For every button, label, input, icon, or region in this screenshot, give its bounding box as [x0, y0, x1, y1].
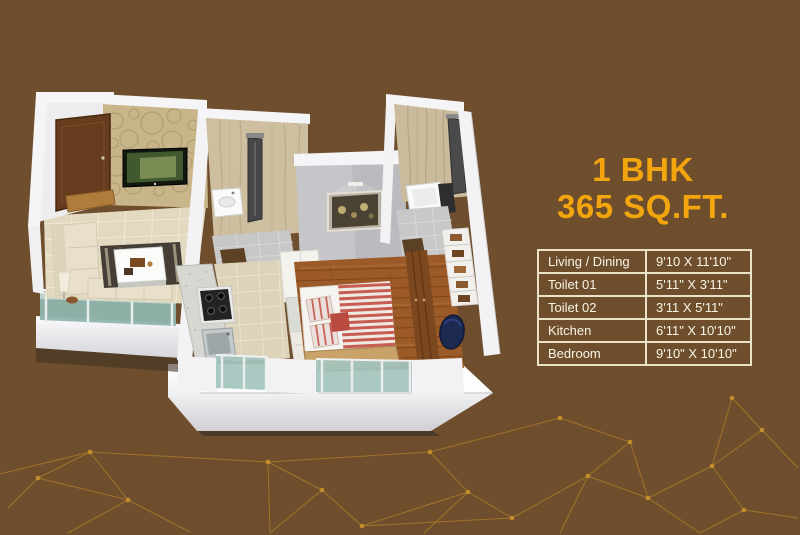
table-room-label: Living / Dining [539, 251, 645, 272]
table-size-value: 6'11" X 10'10" [645, 318, 750, 341]
toilet-01-washbasin [212, 188, 243, 217]
front-walls-and-railings [178, 355, 464, 394]
table-room-label: Toilet 02 [539, 295, 645, 318]
toilet-01-shower [246, 133, 264, 222]
table-room-label: Kitchen [539, 318, 645, 341]
gas-stove [197, 286, 235, 324]
plan-title: 1 BHK 365 SQ.FT. [532, 151, 754, 225]
tv-unit [123, 148, 187, 187]
plan-title-line2: 365 SQ.FT. [532, 188, 754, 225]
bedroom-balcony-railing [316, 359, 414, 392]
plan-title-line1: 1 BHK [532, 151, 754, 188]
table-size-value: 9'10" X 10'10" [645, 341, 750, 364]
table-room-label: Toilet 01 [539, 272, 645, 295]
kitchen-balcony-railing [216, 355, 268, 390]
table-size-value: 5'11" X 3'11" [645, 272, 750, 295]
bedroom [292, 250, 466, 372]
dimensions-table: Living / Dining 9'10 X 11'10" Toilet 01 … [537, 249, 752, 366]
bed [300, 281, 403, 372]
table-size-value: 9'10 X 11'10" [645, 251, 750, 272]
side-stool [66, 297, 78, 304]
building [28, 92, 500, 436]
bedroom-wall-picture [328, 191, 382, 231]
table-room-label: Bedroom [539, 341, 645, 364]
table-size-value: 3'11 X 5'11" [645, 295, 750, 318]
coffee-table [114, 247, 166, 288]
poster-canvas: 1 BHK 365 SQ.FT. Living / Dining 9'10 X … [0, 0, 800, 535]
toilet-01 [198, 108, 310, 274]
